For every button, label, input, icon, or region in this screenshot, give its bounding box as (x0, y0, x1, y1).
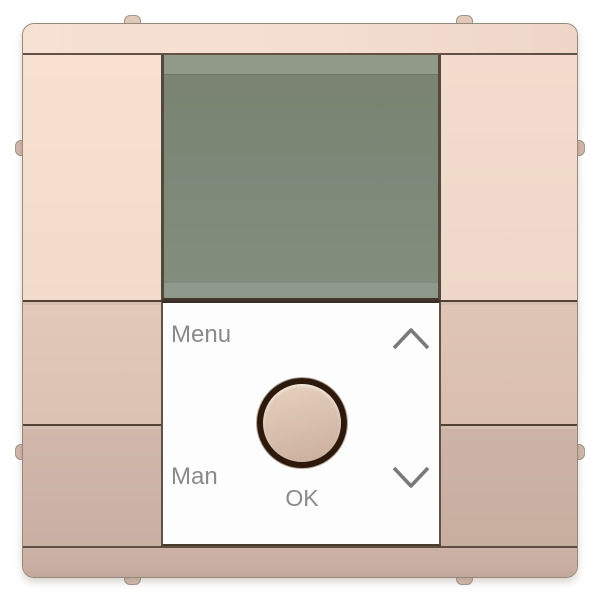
button-upper-left[interactable] (23, 55, 161, 300)
man-label: Man (171, 465, 218, 489)
frame-bottom-bar (23, 546, 577, 578)
button-menu-left[interactable] (23, 305, 161, 424)
thermostat-photo: Menu Man OK (0, 0, 600, 600)
right-button-column (441, 24, 578, 577)
left-button-column (23, 24, 161, 577)
button-down-right[interactable] (441, 429, 578, 546)
button-upper-right[interactable] (441, 55, 578, 300)
lcd-bottom-band (164, 283, 438, 298)
lcd-body (164, 75, 438, 283)
button-up-right[interactable] (441, 305, 578, 424)
chevron-up-icon (391, 326, 431, 351)
button-man-left[interactable] (23, 429, 161, 546)
lcd-top-band (164, 55, 438, 75)
thermostat-device: Menu Man OK (22, 23, 578, 578)
menu-label: Menu (171, 323, 231, 347)
ok-label: OK (257, 487, 347, 510)
ok-knob-button[interactable] (257, 378, 347, 468)
control-panel: Menu Man OK (161, 301, 441, 546)
lcd-display (161, 55, 441, 301)
chevron-down-icon (391, 465, 431, 490)
